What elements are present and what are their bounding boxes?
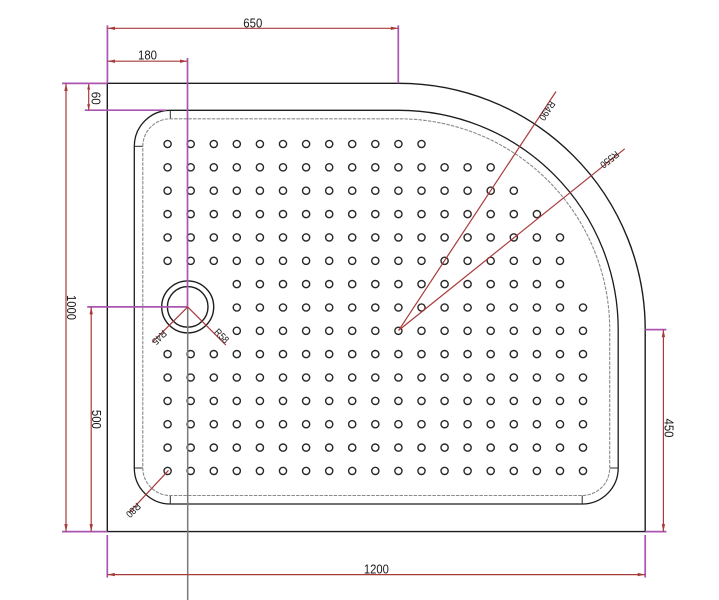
svg-text:450: 450 [661,419,676,438]
svg-text:1200: 1200 [364,562,389,577]
svg-text:R45: R45 [149,327,168,346]
svg-text:R490: R490 [536,98,557,122]
svg-text:R80: R80 [123,500,142,519]
svg-text:R58: R58 [212,327,231,346]
svg-text:500: 500 [89,410,104,429]
svg-text:650: 650 [243,15,262,30]
svg-text:180: 180 [138,48,157,63]
svg-text:60: 60 [88,92,103,105]
svg-text:1000: 1000 [64,295,79,320]
svg-text:R550: R550 [597,148,621,170]
